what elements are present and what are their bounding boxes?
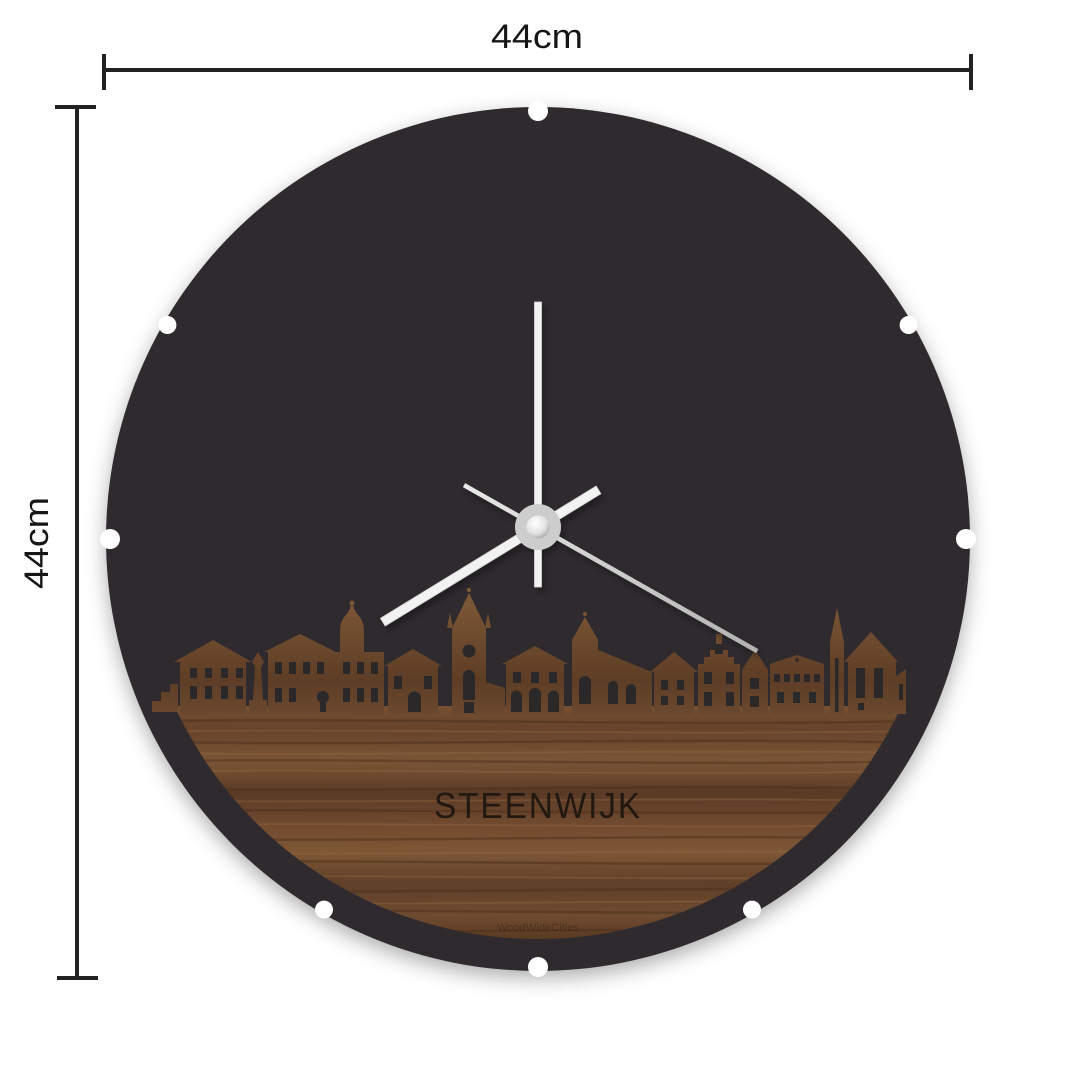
- width-dimension-left-tick: [102, 54, 106, 90]
- hanging-notch: [956, 529, 976, 549]
- width-dimension-right-tick: [969, 54, 973, 90]
- hanging-notch: [528, 957, 548, 977]
- product-dimension-diagram: 44cm 44cm: [0, 0, 1080, 1080]
- width-dimension-line: [104, 68, 971, 72]
- hanging-notch: [900, 316, 918, 334]
- width-dimension-label: 44cm: [491, 18, 583, 56]
- brand-watermark: WoodWideCities: [497, 922, 579, 934]
- hanging-notch: [528, 101, 548, 121]
- height-dimension-top-tick: [55, 105, 96, 109]
- width-dimension: 44cm: [102, 18, 973, 90]
- hanging-notch: [158, 316, 176, 334]
- height-dimension-line: [75, 108, 79, 978]
- height-dimension-bottom-tick: [57, 976, 98, 980]
- height-dimension-label: 44cm: [18, 497, 56, 589]
- building: [770, 655, 824, 714]
- hanging-notch: [743, 901, 761, 919]
- clock-hub-cap: [527, 516, 550, 539]
- hanging-notch: [315, 901, 333, 919]
- hanging-notch: [100, 529, 120, 549]
- height-dimension: 44cm: [18, 105, 98, 980]
- clock-diagram-canvas: 44cm 44cm: [0, 0, 1080, 1080]
- city-name-label: STEENWIJK: [434, 785, 642, 826]
